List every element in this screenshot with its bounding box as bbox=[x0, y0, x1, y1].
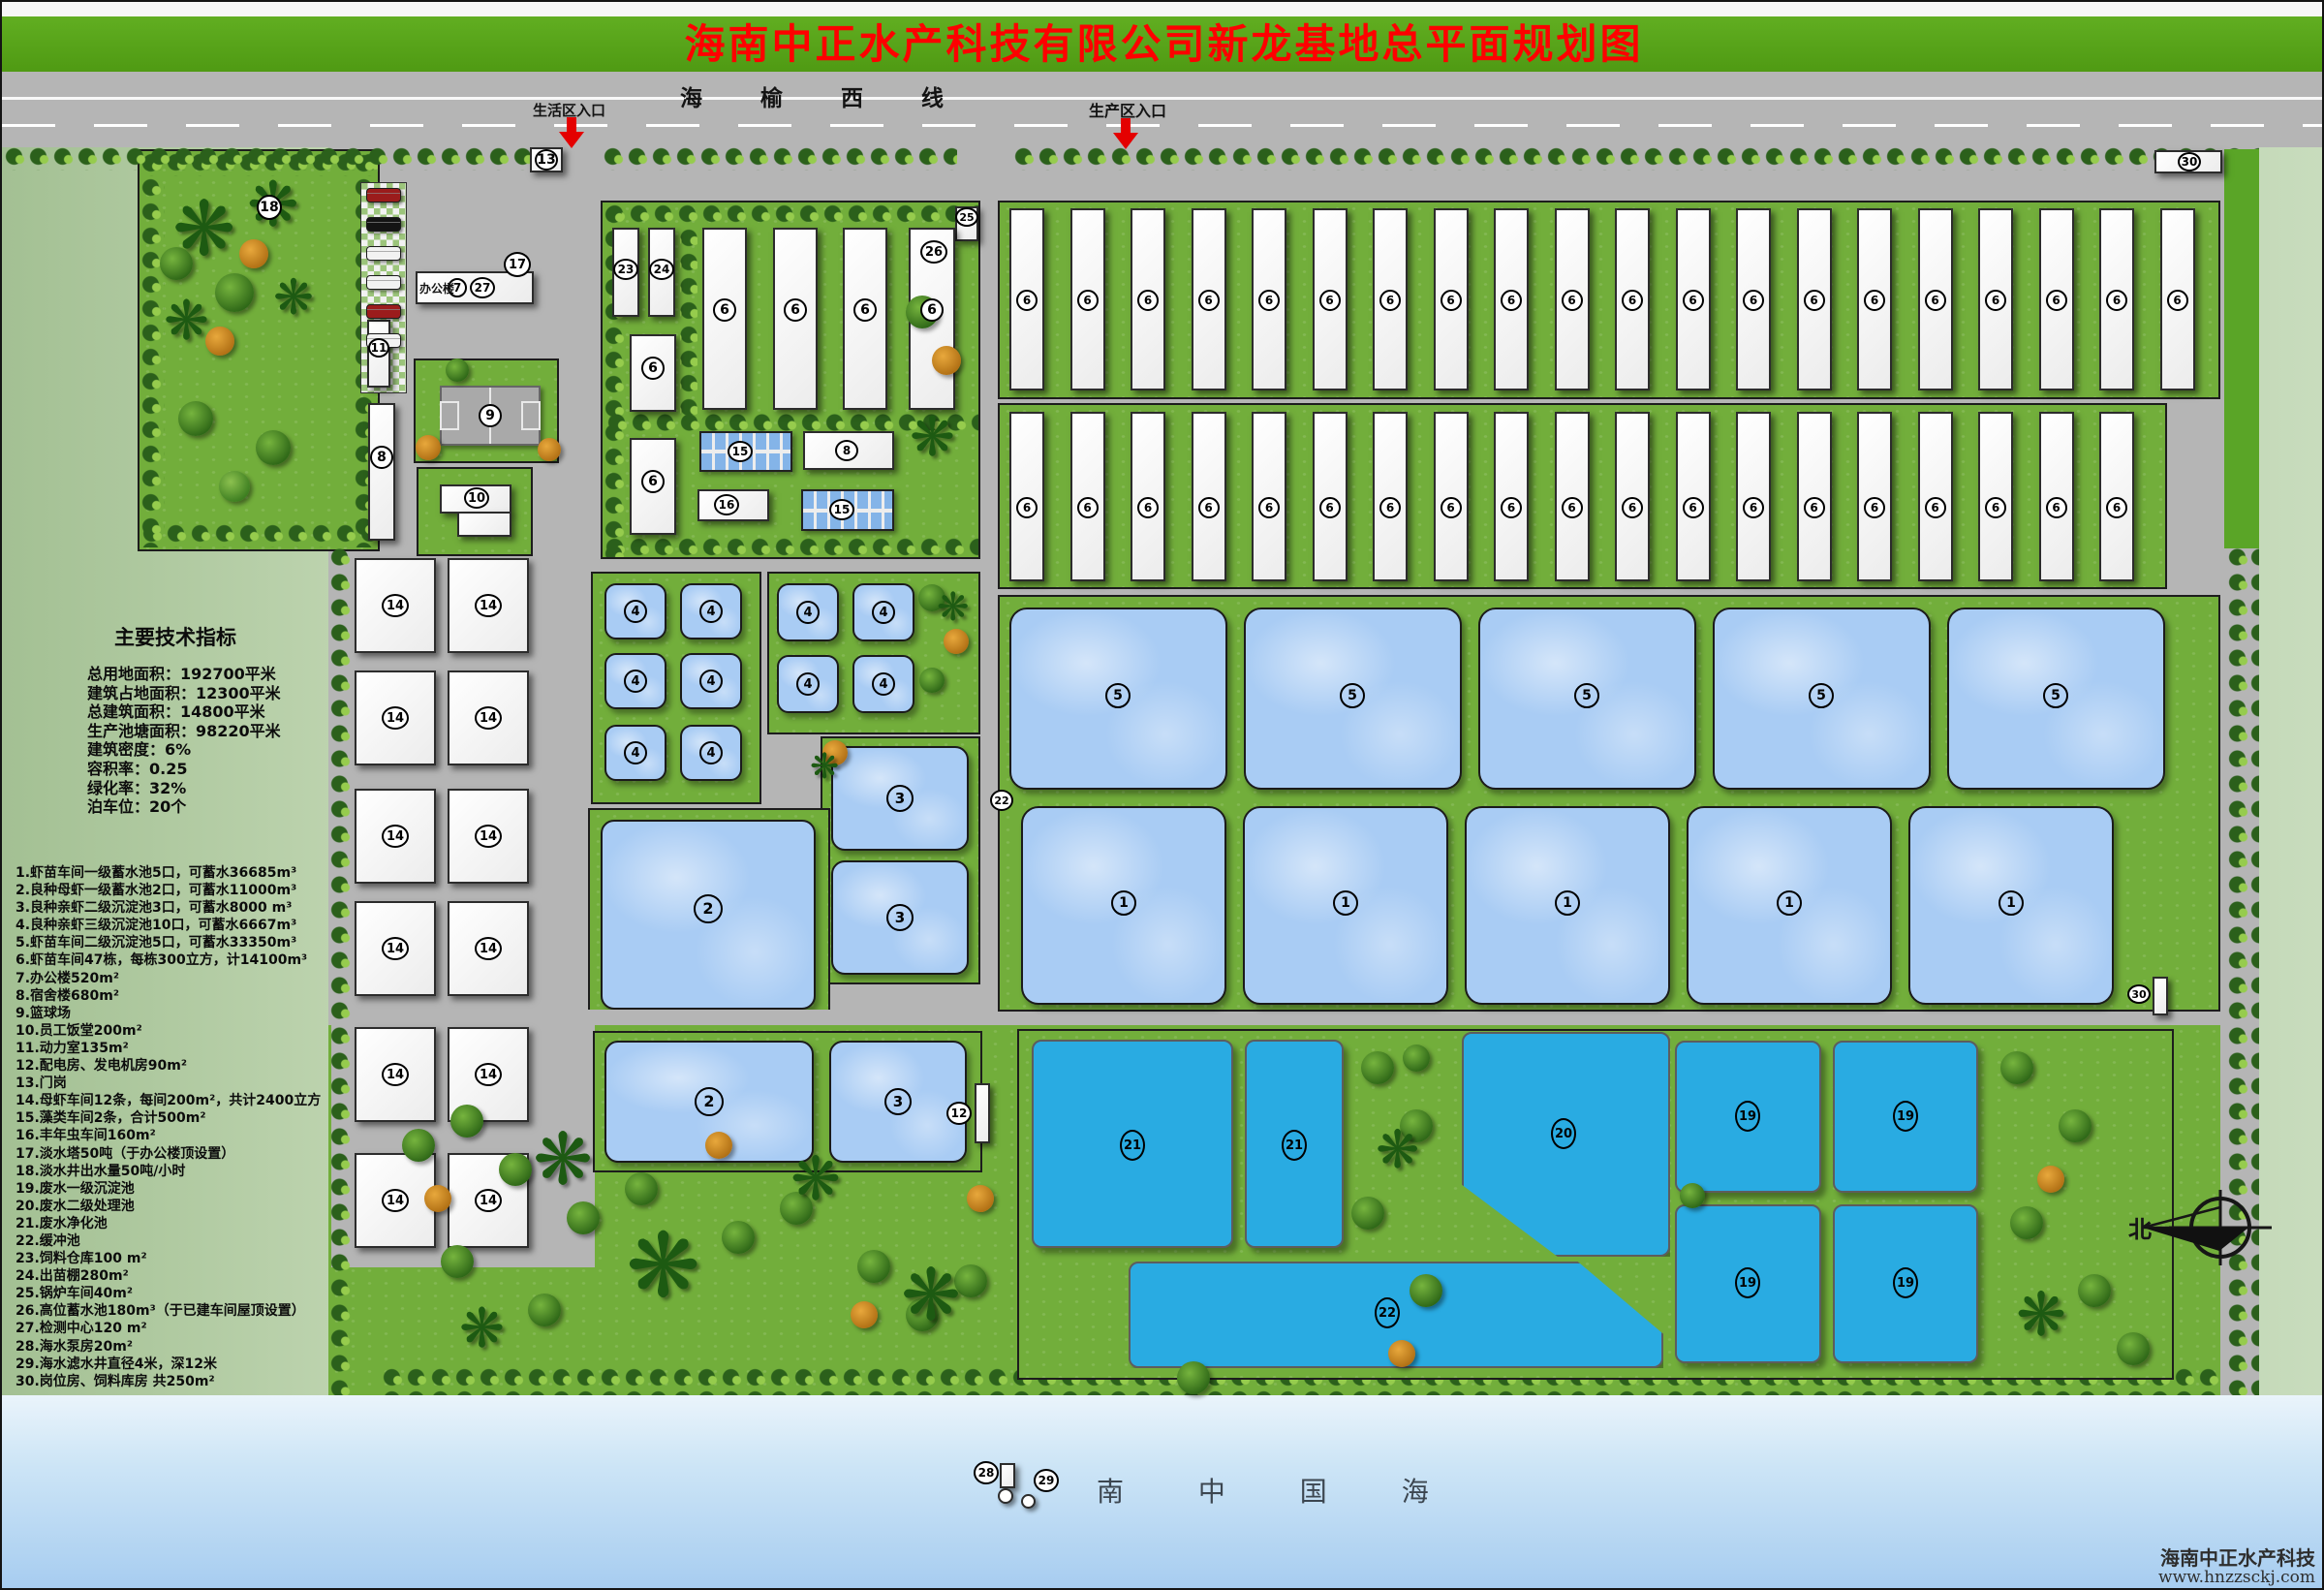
marker-6: 6 bbox=[2046, 290, 2067, 311]
marker-6: 6 bbox=[1016, 497, 1038, 518]
legend-item: 22.缓冲池 bbox=[15, 1232, 321, 1250]
court-key-left bbox=[440, 401, 459, 430]
entrance-residential-arrow bbox=[567, 117, 576, 133]
tree-icon bbox=[1177, 1361, 1210, 1394]
mid-block-trees bbox=[603, 536, 978, 557]
sea-pump-house bbox=[1000, 1463, 1015, 1488]
generator-room bbox=[975, 1083, 990, 1143]
tree-icon bbox=[219, 471, 250, 502]
marker-6: 6 bbox=[1198, 290, 1220, 311]
compass-needle-outline bbox=[2143, 1207, 2220, 1228]
parked-car bbox=[366, 188, 401, 203]
legend-item: 7.办公楼520m² bbox=[15, 970, 321, 987]
marker-6: 6 bbox=[1441, 497, 1462, 518]
tree-icon bbox=[441, 1245, 474, 1278]
palm-tree-icon: ❋ bbox=[2016, 1285, 2066, 1345]
palm-tree-icon: ❋ bbox=[273, 273, 314, 322]
marker-17: 17 bbox=[504, 252, 531, 277]
indicator-line: 泊车位：20个 bbox=[87, 797, 281, 817]
legend-item: 30.岗位房、饲料库房 共250m² bbox=[15, 1373, 321, 1390]
tree-icon bbox=[1403, 1044, 1430, 1072]
marker-14: 14 bbox=[475, 1063, 502, 1086]
tree-icon bbox=[567, 1201, 600, 1234]
legend-item: 10.员工饭堂200m² bbox=[15, 1022, 321, 1040]
marker-1: 1 bbox=[1111, 890, 1136, 916]
tree-icon bbox=[857, 1250, 890, 1283]
legend-item: 21.废水净化池 bbox=[15, 1215, 321, 1232]
post-feed-building bbox=[2153, 977, 2168, 1015]
canteen-building-wing bbox=[457, 512, 511, 537]
marker-25: 25 bbox=[955, 207, 978, 227]
marker-6: 6 bbox=[2167, 290, 2188, 311]
tree-icon bbox=[256, 430, 291, 465]
tree-icon bbox=[932, 346, 961, 375]
marker-6: 6 bbox=[1077, 497, 1099, 518]
indicators-heading: 主要技术指标 bbox=[114, 622, 236, 651]
marker-14: 14 bbox=[382, 1063, 409, 1086]
indicator-line: 生产池塘面积：98220平米 bbox=[87, 722, 281, 741]
page-title: 海南中正水产科技有限公司新龙基地总平面规划图 bbox=[2, 16, 2324, 72]
marker-29: 29 bbox=[1034, 1469, 1059, 1492]
marker-19: 19 bbox=[1893, 1101, 1918, 1132]
marker-14: 14 bbox=[382, 937, 409, 960]
sea-name: 南 中 国 海 bbox=[1097, 1471, 1462, 1510]
marker-6: 6 bbox=[713, 298, 736, 322]
marker-6: 6 bbox=[1622, 290, 1643, 311]
green-field bbox=[2224, 149, 2259, 548]
marker-6: 6 bbox=[1198, 497, 1220, 518]
legend-item: 1.虾苗车间一级蓄水池5口，可蓄水36685m³ bbox=[15, 864, 321, 882]
marker-6: 6 bbox=[1925, 290, 1946, 311]
marker-4: 4 bbox=[624, 670, 647, 693]
legend-item: 11.动力室135m² bbox=[15, 1040, 321, 1057]
boundary-trees-top bbox=[601, 145, 957, 171]
marker-24: 24 bbox=[649, 259, 674, 280]
parked-car bbox=[366, 304, 401, 319]
indicator-line: 建筑占地面积：12300平米 bbox=[87, 684, 281, 703]
legend-item: 15.藻类车间2条，合计500m² bbox=[15, 1109, 321, 1127]
marker-6: 6 bbox=[1016, 290, 1038, 311]
indicator-line: 容积率：0.25 bbox=[87, 760, 281, 779]
marker-6: 6 bbox=[1137, 290, 1159, 311]
legend-item: 23.饲料仓库100 m² bbox=[15, 1250, 321, 1267]
marker-6: 6 bbox=[1258, 497, 1280, 518]
marker-4: 4 bbox=[796, 672, 820, 696]
palm-tree-icon: ❋ bbox=[164, 295, 209, 349]
tree-icon bbox=[416, 435, 441, 460]
tree-icon bbox=[944, 629, 969, 654]
marker-15: 15 bbox=[728, 441, 753, 462]
boundary-trees-top bbox=[2, 145, 542, 171]
legend-item: 29.海水滤水井直径4米，深12米 bbox=[15, 1356, 321, 1373]
strip-row-north bbox=[998, 201, 2220, 399]
office-label: 办公楼 bbox=[419, 280, 454, 296]
marker-15: 15 bbox=[829, 499, 854, 520]
marker-6: 6 bbox=[1319, 497, 1341, 518]
marker-6: 6 bbox=[1985, 290, 2006, 311]
legend-item: 13.门岗 bbox=[15, 1075, 321, 1092]
marker-8: 8 bbox=[835, 440, 858, 461]
marker-6: 6 bbox=[1562, 497, 1583, 518]
marker-1: 1 bbox=[1333, 890, 1358, 916]
marker-6: 6 bbox=[1379, 290, 1401, 311]
tree-icon bbox=[1680, 1183, 1705, 1208]
legend-item: 9.篮球场 bbox=[15, 1005, 321, 1022]
legend-item: 25.锅炉车间40m² bbox=[15, 1285, 321, 1302]
marker-6: 6 bbox=[1379, 497, 1401, 518]
marker-4: 4 bbox=[872, 672, 895, 696]
marker-4: 4 bbox=[699, 741, 723, 764]
watermark-url: www.hnzzsckj.com bbox=[2085, 1568, 2315, 1587]
marker-6: 6 bbox=[920, 298, 944, 322]
marker-30: 30 bbox=[2178, 152, 2201, 171]
tree-icon bbox=[205, 327, 234, 356]
marker-19: 19 bbox=[1735, 1101, 1760, 1132]
marker-2: 2 bbox=[695, 1087, 724, 1116]
marker-14: 14 bbox=[382, 1189, 409, 1212]
marker-6: 6 bbox=[1137, 497, 1159, 518]
tree-icon bbox=[2078, 1274, 2111, 1307]
parked-car bbox=[366, 217, 401, 232]
palm-tree-icon: ❋ bbox=[1376, 1124, 1419, 1176]
marker-6: 6 bbox=[1743, 497, 1764, 518]
legend-item: 6.虾苗车间47栋，每栋300立方，计14100m³ bbox=[15, 951, 321, 969]
tree-icon bbox=[215, 273, 254, 312]
marker-6: 6 bbox=[1864, 290, 1885, 311]
palm-tree-icon: ❋ bbox=[901, 1260, 961, 1331]
tree-icon bbox=[1361, 1051, 1394, 1084]
marker-6: 6 bbox=[784, 298, 807, 322]
tree-icon bbox=[1351, 1197, 1384, 1230]
marker-6: 6 bbox=[1622, 497, 1643, 518]
legend-item: 20.废水二级处理池 bbox=[15, 1198, 321, 1215]
palm-tree-icon: ❋ bbox=[810, 750, 839, 785]
watermark-company: 海南中正水产科技 bbox=[2085, 1543, 2315, 1571]
marker-23: 23 bbox=[613, 259, 638, 280]
tree-icon bbox=[538, 438, 561, 461]
marker-19: 19 bbox=[1893, 1267, 1918, 1298]
marker-11: 11 bbox=[368, 338, 389, 358]
legend-item: 8.宿舍楼680m² bbox=[15, 987, 321, 1005]
marker-14: 14 bbox=[382, 706, 409, 730]
parked-car bbox=[366, 275, 401, 290]
marker-6: 6 bbox=[641, 357, 665, 380]
tree-icon bbox=[424, 1185, 451, 1212]
palm-tree-icon: ❋ bbox=[910, 411, 955, 465]
marker-6: 6 bbox=[1925, 497, 1946, 518]
marker-14: 14 bbox=[475, 1189, 502, 1212]
lane-line-dashed bbox=[2, 124, 2324, 127]
marker-1: 1 bbox=[1777, 890, 1802, 916]
marker-5: 5 bbox=[1340, 683, 1365, 708]
legend-item: 12.配电房、发电机房90m² bbox=[15, 1057, 321, 1075]
legend-item: 2.良种母虾一级蓄水池2口，可蓄水11000m³ bbox=[15, 882, 321, 899]
road-name: 海 榆 西 线 bbox=[680, 79, 969, 112]
site-master-plan: 海南中正水产科技有限公司新龙基地总平面规划图 南 中 国 海 主要技术指标 总用… bbox=[0, 0, 2324, 1590]
marker-6: 6 bbox=[2046, 497, 2067, 518]
legend-item: 3.良种亲虾二级沉淀池3口，可蓄水8000 m³ bbox=[15, 899, 321, 917]
legend-item: 17.淡水塔50吨（于办公楼顶设置） bbox=[15, 1145, 321, 1163]
marker-6: 6 bbox=[1804, 497, 1825, 518]
tree-icon bbox=[1388, 1340, 1415, 1367]
marker-3: 3 bbox=[886, 785, 914, 812]
marker-4: 4 bbox=[699, 670, 723, 693]
legend-list: 1.虾苗车间一级蓄水池5口，可蓄水36685m³2.良种母虾一级蓄水池2口，可蓄… bbox=[15, 864, 321, 1390]
marker-6: 6 bbox=[1501, 497, 1522, 518]
legend-item: 14.母虾车间12条，每间200m²，共计2400立方 bbox=[15, 1092, 321, 1109]
marker-2: 2 bbox=[694, 894, 723, 923]
legend-item: 24.出苗棚280m² bbox=[15, 1267, 321, 1285]
tree-icon bbox=[919, 668, 945, 693]
marker-14: 14 bbox=[382, 594, 409, 617]
palm-tree-icon: ❋ bbox=[533, 1124, 593, 1196]
marker-28: 28 bbox=[974, 1461, 999, 1484]
marker-3: 3 bbox=[886, 904, 914, 931]
marker-10: 10 bbox=[464, 487, 489, 509]
marker-14: 14 bbox=[382, 825, 409, 848]
tree-icon bbox=[450, 1105, 483, 1138]
marker-1: 1 bbox=[1555, 890, 1580, 916]
park-tree-border bbox=[139, 151, 165, 547]
marker-4: 4 bbox=[796, 601, 820, 624]
marker-3: 3 bbox=[884, 1088, 912, 1115]
palm-tree-icon: ❋ bbox=[937, 588, 970, 627]
legend-item: 19.废水一级沉淀池 bbox=[15, 1180, 321, 1198]
marker-12: 12 bbox=[946, 1102, 972, 1125]
legend-item: 18.淡水井出水量50吨/小时 bbox=[15, 1163, 321, 1180]
tree-icon bbox=[528, 1294, 561, 1326]
marker-22: 22 bbox=[1375, 1297, 1400, 1328]
legend-item: 26.高位蓄水池180m³（于已建车间屋顶设置） bbox=[15, 1302, 321, 1320]
tree-icon bbox=[499, 1153, 532, 1186]
court-key-right bbox=[521, 401, 541, 430]
marker-14: 14 bbox=[475, 594, 502, 617]
marker-6: 6 bbox=[1683, 290, 1704, 311]
boundary-trees-west bbox=[328, 545, 352, 1395]
compass-north-label: 北 bbox=[2128, 1216, 2152, 1243]
mid-block-trees bbox=[603, 203, 978, 226]
legend-item: 27.检测中心120 m² bbox=[15, 1320, 321, 1337]
palm-tree-icon: ❋ bbox=[459, 1302, 505, 1356]
entrance-residential-arrow-head bbox=[559, 132, 584, 148]
entrance-production-arrow-head bbox=[1113, 133, 1138, 149]
marker-13: 13 bbox=[535, 149, 558, 171]
marker-21: 21 bbox=[1120, 1130, 1145, 1161]
marker-30: 30 bbox=[2127, 984, 2151, 1004]
tree-icon bbox=[2059, 1109, 2092, 1142]
marker-4: 4 bbox=[699, 600, 723, 623]
tree-icon bbox=[2037, 1166, 2064, 1193]
top-margin bbox=[2, 2, 2324, 16]
tree-icon bbox=[851, 1301, 878, 1328]
marker-6: 6 bbox=[1258, 290, 1280, 311]
tree-icon bbox=[160, 247, 193, 280]
dormitory-building bbox=[368, 403, 395, 541]
legend-item: 5.虾苗车间二级沉淀池5口，可蓄水33350m³ bbox=[15, 934, 321, 951]
marker-6: 6 bbox=[1077, 290, 1099, 311]
mid-block-trees bbox=[680, 226, 697, 420]
marker-6: 6 bbox=[1683, 497, 1704, 518]
marker-6: 6 bbox=[2106, 497, 2127, 518]
compass: 北 bbox=[2128, 1186, 2274, 1268]
entrance-production-arrow bbox=[1121, 118, 1131, 134]
legend-item: 28.海水泵房20m² bbox=[15, 1338, 321, 1356]
marker-20: 20 bbox=[1551, 1118, 1576, 1149]
tree-icon bbox=[2117, 1332, 2150, 1365]
tree-icon bbox=[625, 1172, 658, 1205]
marker-27: 27 bbox=[470, 277, 495, 298]
legend-item: 4.良种亲虾三级沉淀池10口，可蓄水6667m³ bbox=[15, 917, 321, 934]
tree-icon bbox=[446, 359, 469, 382]
marker-5: 5 bbox=[1809, 683, 1834, 708]
indicators-list: 总用地面积：192700平米建筑占地面积：12300平米总建筑面积：14800平… bbox=[87, 665, 281, 817]
tree-icon bbox=[178, 401, 213, 436]
marker-6: 6 bbox=[1562, 290, 1583, 311]
marker-6: 6 bbox=[1864, 497, 1885, 518]
marker-19: 19 bbox=[1735, 1267, 1760, 1298]
tree-icon bbox=[1410, 1274, 1442, 1307]
marker-5: 5 bbox=[1574, 683, 1599, 708]
marker-16: 16 bbox=[714, 494, 739, 515]
marker-6: 6 bbox=[641, 470, 665, 493]
marker-4: 4 bbox=[624, 600, 647, 623]
indicator-line: 建筑密度：6% bbox=[87, 740, 281, 760]
tree-icon bbox=[722, 1221, 755, 1254]
marker-6: 6 bbox=[1743, 290, 1764, 311]
marker-8: 8 bbox=[370, 446, 393, 469]
marker-9: 9 bbox=[479, 404, 502, 427]
indicator-line: 绿化率：32% bbox=[87, 779, 281, 798]
title-bar: 海南中正水产科技有限公司新龙基地总平面规划图 bbox=[2, 16, 2324, 72]
filter-well bbox=[998, 1488, 1013, 1504]
filter-well bbox=[1021, 1494, 1036, 1509]
marker-22: 22 bbox=[990, 790, 1013, 811]
marker-14: 14 bbox=[475, 825, 502, 848]
marker-6: 6 bbox=[1319, 290, 1341, 311]
indicator-line: 总用地面积：192700平米 bbox=[87, 665, 281, 684]
marker-5: 5 bbox=[1105, 683, 1131, 708]
palm-tree-icon: ❋ bbox=[790, 1149, 841, 1209]
marker-14: 14 bbox=[475, 937, 502, 960]
tree-icon bbox=[2000, 1051, 2033, 1084]
marker-5: 5 bbox=[2043, 683, 2068, 708]
marker-6: 6 bbox=[1804, 290, 1825, 311]
marker-4: 4 bbox=[872, 601, 895, 624]
tree-icon bbox=[705, 1132, 732, 1159]
tree-icon bbox=[967, 1185, 994, 1212]
legend-item: 16.丰年虫车间160m² bbox=[15, 1127, 321, 1144]
tree-icon bbox=[2010, 1206, 2043, 1239]
compass-needle-solid bbox=[2143, 1228, 2248, 1251]
marker-4: 4 bbox=[624, 741, 647, 764]
marker-14: 14 bbox=[475, 706, 502, 730]
marker-6: 6 bbox=[1441, 290, 1462, 311]
marker-6: 6 bbox=[1501, 290, 1522, 311]
marker-26: 26 bbox=[920, 240, 947, 264]
marker-18: 18 bbox=[257, 195, 282, 220]
marker-6: 6 bbox=[853, 298, 877, 322]
palm-tree-icon: ❋ bbox=[626, 1222, 700, 1311]
marker-6: 6 bbox=[1985, 497, 2006, 518]
marker-21: 21 bbox=[1282, 1130, 1307, 1161]
boundary-trees-top bbox=[1011, 145, 2259, 171]
marker-1: 1 bbox=[1999, 890, 2024, 916]
tree-icon bbox=[402, 1129, 435, 1162]
indicator-line: 总建筑面积：14800平米 bbox=[87, 702, 281, 722]
marker-6: 6 bbox=[2106, 290, 2127, 311]
tree-icon bbox=[239, 239, 268, 268]
parked-car bbox=[366, 246, 401, 261]
